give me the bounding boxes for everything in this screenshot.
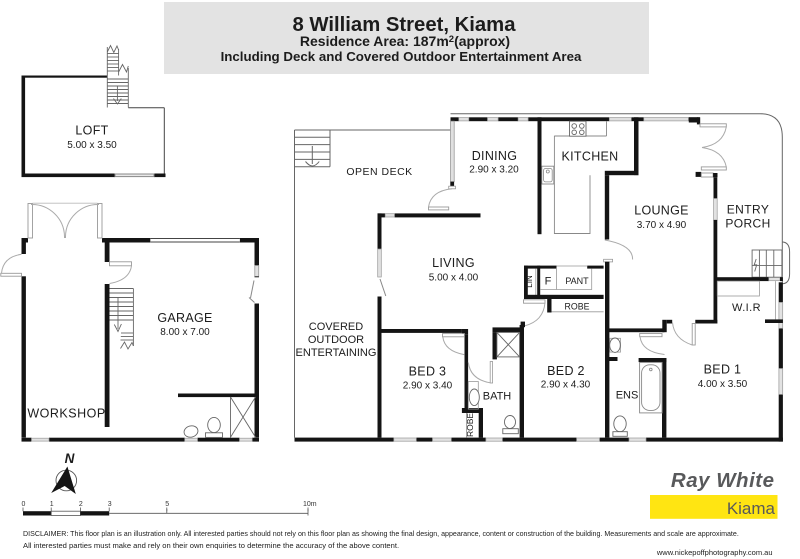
svg-text:GARAGE: GARAGE: [157, 311, 212, 325]
svg-text:BED 1: BED 1: [704, 363, 742, 377]
svg-text:ROBE: ROBE: [465, 413, 475, 437]
svg-text:www.nickepoffphotography.com.a: www.nickepoffphotography.com.au: [656, 548, 773, 557]
svg-text:PORCH: PORCH: [725, 217, 770, 231]
svg-text:ENTERTAINING: ENTERTAINING: [296, 347, 377, 359]
svg-text:3: 3: [108, 501, 112, 508]
svg-text:DINING: DINING: [472, 149, 518, 163]
svg-text:Ray White: Ray White: [671, 469, 775, 492]
svg-text:COVERED: COVERED: [309, 321, 363, 333]
svg-text:BATH: BATH: [483, 391, 512, 403]
svg-text:5.00 x 4.00: 5.00 x 4.00: [429, 273, 479, 284]
svg-text:OPEN DECK: OPEN DECK: [346, 166, 412, 178]
svg-text:BED 2: BED 2: [547, 364, 585, 378]
svg-text:KITCHEN: KITCHEN: [562, 150, 619, 164]
svg-text:Residence Area: 187m2(approx): Residence Area: 187m2(approx): [300, 33, 510, 49]
svg-text:0: 0: [22, 501, 26, 508]
svg-text:LOUNGE: LOUNGE: [634, 204, 689, 218]
svg-text:WORKSHOP: WORKSHOP: [27, 407, 105, 421]
svg-text:OUTDOOR: OUTDOOR: [308, 334, 364, 346]
svg-text:1: 1: [50, 501, 54, 508]
svg-text:8.00 x 7.00: 8.00 x 7.00: [160, 327, 210, 338]
svg-text:2.90 x 3.40: 2.90 x 3.40: [403, 381, 453, 392]
svg-text:N: N: [65, 451, 75, 466]
svg-text:LIN: LIN: [525, 275, 534, 288]
svg-text:W.I.R: W.I.R: [732, 302, 761, 314]
svg-text:PANT: PANT: [565, 276, 589, 286]
svg-text:BED 3: BED 3: [409, 365, 447, 379]
svg-text:F: F: [545, 276, 552, 288]
svg-text:5: 5: [165, 501, 169, 508]
svg-text:10m: 10m: [303, 501, 317, 508]
svg-text:ROBE: ROBE: [565, 302, 590, 312]
svg-text:2: 2: [79, 501, 83, 508]
svg-text:Including Deck and Covered Out: Including Deck and Covered Outdoor Enter…: [221, 49, 582, 64]
svg-text:DISCLAIMER: This floor plan is: DISCLAIMER: This floor plan is an illust…: [23, 530, 739, 538]
svg-text:5.00 x 3.50: 5.00 x 3.50: [67, 140, 117, 151]
svg-text:3.70 x 4.90: 3.70 x 4.90: [637, 220, 687, 231]
svg-text:2.90 x 4.30: 2.90 x 4.30: [541, 380, 591, 391]
svg-text:ENTRY: ENTRY: [727, 203, 769, 217]
svg-text:LOFT: LOFT: [75, 124, 108, 138]
svg-text:Kiama: Kiama: [727, 499, 776, 518]
svg-text:LIVING: LIVING: [432, 256, 475, 270]
svg-text:2.90 x 3.20: 2.90 x 3.20: [469, 165, 519, 176]
svg-text:4.00 x 3.50: 4.00 x 3.50: [698, 379, 748, 390]
svg-text:ENS: ENS: [616, 390, 639, 402]
svg-text:All interested parties must ma: All interested parties must make and rel…: [23, 541, 399, 550]
